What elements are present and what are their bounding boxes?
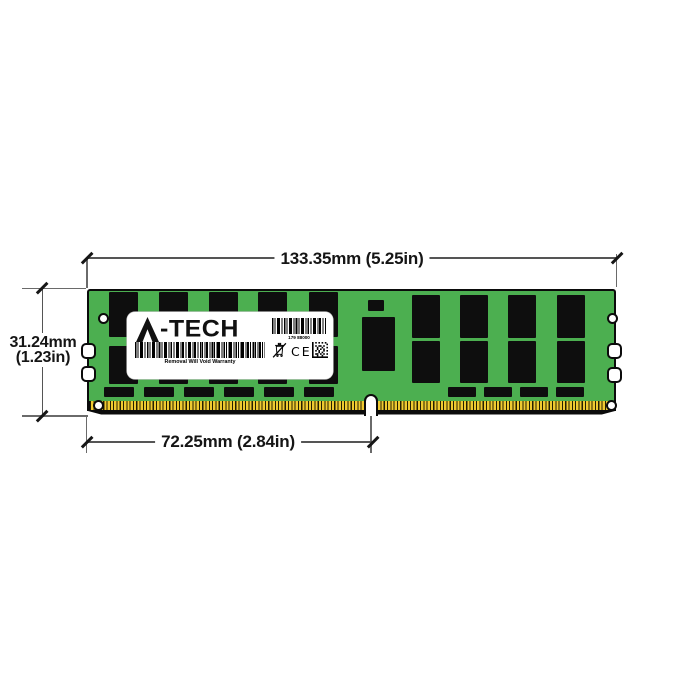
- edge-notch: [81, 366, 96, 382]
- mounting-hole: [98, 313, 109, 324]
- weee-icon: [271, 342, 288, 359]
- dram-chip: [508, 341, 536, 383]
- brand-text: -TECH: [160, 318, 239, 342]
- dim-height-ext-top: [22, 288, 86, 289]
- pin-notch: [364, 394, 378, 416]
- dim-pins-text: 72.25mm (2.84in): [155, 432, 301, 452]
- passive-chip: [448, 387, 476, 397]
- edge-notch: [81, 343, 96, 359]
- dim-height-text: 31.24mm (1.23in): [8, 333, 77, 367]
- qr-code-icon: [312, 342, 328, 358]
- product-diagram: -TECH 179 88000 Removal Will Void Warran…: [0, 0, 700, 700]
- mounting-hole: [607, 313, 618, 324]
- dim-pins-ext-right: [370, 414, 371, 453]
- passive-chip: [144, 387, 174, 397]
- dim-height-in: (1.23in): [9, 350, 76, 365]
- edge-notch: [607, 367, 622, 383]
- dim-height-mm: 31.24mm: [9, 335, 76, 350]
- warranty-barcode: [135, 342, 265, 358]
- brand-label: -TECH 179 88000 Removal Will Void Warran…: [127, 312, 333, 379]
- module-bottom-edge: [88, 411, 615, 415]
- dram-chip: [460, 295, 488, 338]
- dim-height-ext-bottom: [22, 415, 88, 416]
- passive-chip: [264, 387, 294, 397]
- register-chip: [362, 317, 395, 371]
- gold-pins: [90, 401, 614, 410]
- serial-barcode: [272, 318, 326, 334]
- dram-chip: [557, 295, 585, 338]
- dram-chip: [412, 295, 440, 338]
- serial-number: 179 88000: [272, 335, 326, 340]
- dram-chip: [508, 295, 536, 338]
- warranty-text: Removal Will Void Warranty: [135, 359, 265, 365]
- atech-logo: -TECH: [136, 316, 239, 343]
- passive-chip: [520, 387, 548, 397]
- edge-notch: [607, 343, 622, 359]
- dram-chip: [557, 341, 585, 383]
- pin-edge-band: [87, 401, 616, 411]
- ram-module: -TECH 179 88000 Removal Will Void Warran…: [87, 289, 616, 416]
- passive-chip: [304, 387, 334, 397]
- dim-width-text: 133.35mm (5.25in): [274, 249, 429, 269]
- dim-pins-ext-left: [86, 417, 87, 453]
- passive-chip: [484, 387, 512, 397]
- a-glyph-icon: [136, 317, 159, 342]
- passive-chip: [224, 387, 254, 397]
- dim-width-ext-left: [86, 258, 87, 288]
- spd-chip: [368, 300, 384, 311]
- dram-chip: [412, 341, 440, 383]
- mounting-hole: [93, 400, 104, 411]
- ce-mark: CE: [291, 344, 312, 359]
- mounting-hole: [606, 400, 617, 411]
- passive-chip: [184, 387, 214, 397]
- passive-chip: [556, 387, 584, 397]
- dram-chip: [460, 341, 488, 383]
- passive-chip: [104, 387, 134, 397]
